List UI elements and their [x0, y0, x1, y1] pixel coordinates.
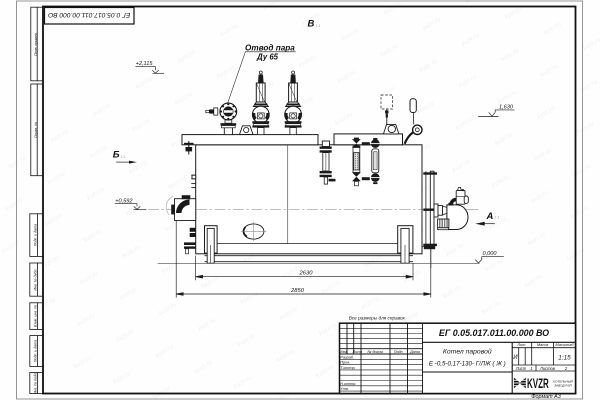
- svg-text:1:15: 1:15: [558, 354, 571, 361]
- svg-text:Подп.: Подп.: [394, 350, 404, 354]
- svg-text:2850: 2850: [290, 288, 305, 294]
- svg-text:Масса: Масса: [537, 342, 549, 347]
- svg-text:Справ. №: Справ. №: [34, 122, 38, 138]
- svg-text:Перв. примен.: Перв. примен.: [34, 32, 38, 56]
- svg-text:Изм: Изм: [340, 350, 347, 354]
- svg-text:Лист: Лист: [352, 350, 363, 354]
- svg-text:+2,115: +2,115: [136, 61, 154, 67]
- svg-text:2630: 2630: [299, 271, 314, 277]
- svg-text:0,000: 0,000: [483, 251, 498, 257]
- svg-text:Н.контр.: Н.контр.: [340, 382, 356, 386]
- svg-text:КОТЕЛЬНЫЙ: КОТЕЛЬНЫЙ: [553, 379, 573, 383]
- svg-text:ЗАВОД РЭП: ЗАВОД РЭП: [554, 384, 573, 388]
- svg-text:Масштаб: Масштаб: [555, 342, 574, 347]
- svg-text:Котел паровой: Котел паровой: [443, 348, 492, 356]
- svg-text:А: А: [486, 211, 494, 222]
- svg-text:Пров.: Пров.: [340, 361, 350, 365]
- svg-text:1:1: 1:1: [494, 215, 499, 219]
- svg-text:Отвод пара: Отвод пара: [245, 43, 295, 52]
- svg-text:ЕГ 0.05.017.011.00.000 ВО: ЕГ 0.05.017.011.00.000 ВО: [47, 11, 130, 18]
- svg-text:Т.контр.: Т.контр.: [340, 366, 355, 370]
- svg-text:Формат А3: Формат А3: [531, 394, 561, 400]
- svg-text:В: В: [308, 19, 315, 30]
- svg-text:Все размеры для справок: Все размеры для справок: [349, 315, 406, 320]
- svg-text:ЕГ 0.05.017.011.00.000 ВО: ЕГ 0.05.017.011.00.000 ВО: [439, 328, 549, 338]
- svg-text:И: И: [513, 355, 518, 361]
- svg-text:Б: Б: [113, 149, 120, 160]
- svg-text:Инв. № подл.: Инв. № подл.: [34, 372, 38, 394]
- svg-text:1:1: 1:1: [120, 155, 125, 159]
- svg-text:№ докум.: № докум.: [367, 350, 383, 354]
- svg-text:Лист: Лист: [515, 366, 527, 371]
- svg-text:Подп. и дата: Подп. и дата: [34, 224, 38, 247]
- svg-text:Лит.: Лит.: [516, 342, 526, 347]
- svg-text:Утв.: Утв.: [340, 387, 349, 391]
- svg-text:Подп. и дата: Подп. и дата: [34, 340, 38, 363]
- svg-text:Дата: Дата: [409, 350, 420, 354]
- svg-text:Е -0,5-0,17-130- Г/ЛЖ ( Ж ): Е -0,5-0,17-130- Г/ЛЖ ( Ж ): [429, 360, 506, 367]
- svg-text:1: 1: [530, 366, 532, 371]
- svg-text:Листов: Листов: [539, 366, 556, 371]
- svg-text:Разраб.: Разраб.: [340, 355, 354, 359]
- svg-text:Взам. инв. №: Взам. инв. №: [34, 305, 38, 327]
- svg-text:1:1: 1:1: [316, 24, 321, 28]
- svg-text:Ду 65: Ду 65: [256, 53, 279, 62]
- svg-text:Инв. № дубл.: Инв. № дубл.: [34, 269, 38, 291]
- svg-text:KVZR: KVZR: [527, 376, 549, 391]
